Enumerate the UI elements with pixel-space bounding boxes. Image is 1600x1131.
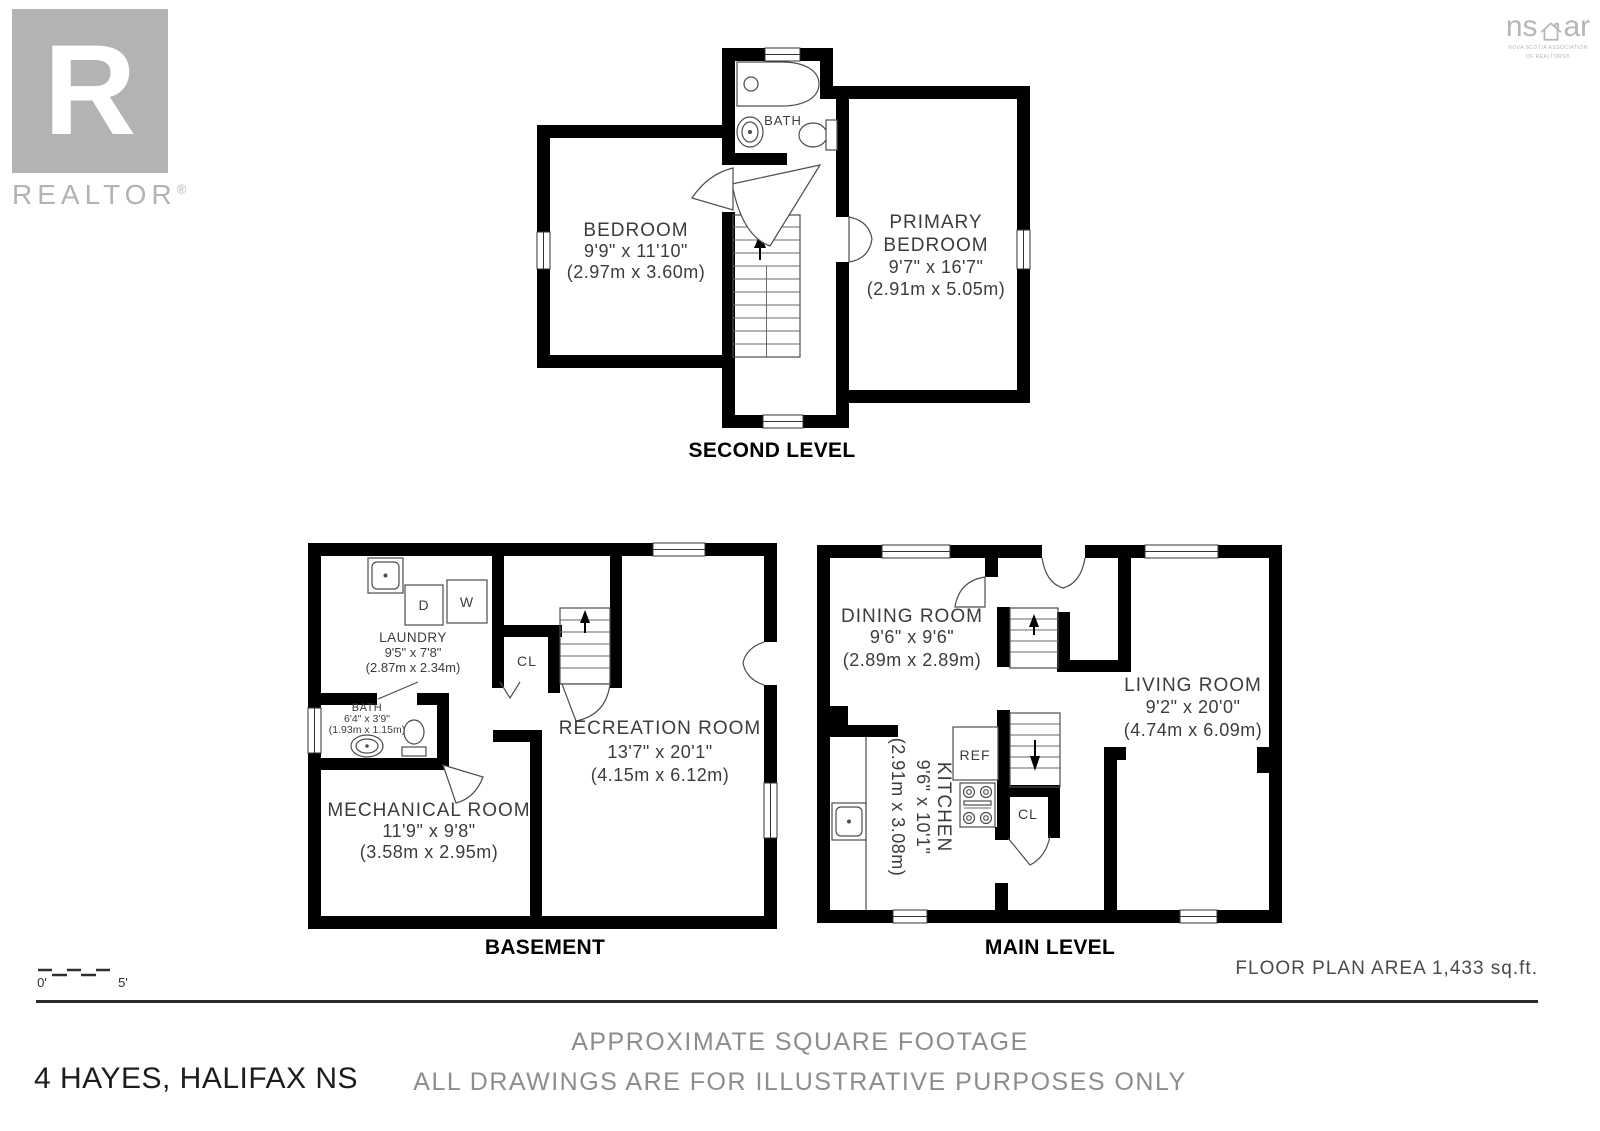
room-label-kitchen: KITCHEN [933, 762, 954, 852]
kitchen-sink-icon [832, 803, 866, 840]
second-level-labels: BATH BEDROOM 9'9" x 11'10" (2.97m x 3.60… [567, 113, 1006, 462]
main-lower-stairs [1010, 713, 1060, 787]
room-dim-recreation: 13'7" x 20'1" [607, 742, 712, 762]
nsar-subtext-1: NOVA SCOTIA ASSOCIATION [1498, 45, 1598, 51]
room-dim-kitchen-metric: (2.91m x 3.08m) [888, 738, 908, 877]
nsar-subtext-2: OF REALTORS® [1498, 54, 1598, 60]
room-label-dining: DINING ROOM [841, 606, 983, 627]
nsar-logo-word: ns ar [1498, 12, 1598, 42]
main-level-labels: DINING ROOM 9'6" x 9'6" (2.89m x 2.89m) … [841, 606, 1262, 959]
room-dim-recreation-metric: (4.15m x 6.12m) [591, 765, 730, 785]
nsar-logo: ns ar NOVA SCOTIA ASSOCIATION OF REALTOR… [1498, 12, 1598, 60]
stairs-down-arrow-icon [1030, 756, 1040, 771]
stove-icon [960, 783, 995, 827]
scale-start-label: 0' [37, 975, 47, 990]
basement-labels: D W LAUNDRY 9'5" x 7'8" (2.87m x 2.34m) … [327, 594, 761, 959]
stairs-up-arrow-icon [580, 610, 590, 623]
sink-icon [351, 735, 383, 757]
scale-bar: 0' 5' [30, 958, 170, 998]
realtor-logo-letter: R [44, 27, 136, 155]
closet-label: CL [1018, 806, 1038, 822]
floor-plan-area-note: FLOOR PLAN AREA 1,433 sq.ft. [1235, 958, 1538, 980]
room-label-living: LIVING ROOM [1124, 675, 1262, 696]
basement-stairs [560, 608, 610, 721]
realtor-logo-icon: R [12, 9, 168, 173]
dryer-label: D [418, 597, 429, 613]
room-label-laundry: LAUNDRY [379, 630, 447, 645]
fridge-label: REF [960, 747, 991, 763]
room-dim-living-metric: (4.74m x 6.09m) [1124, 720, 1263, 740]
bathtub-icon [737, 62, 819, 106]
room-label-primary-1: PRIMARY [889, 212, 982, 233]
room-dim-dining: 9'6" x 9'6" [870, 627, 954, 647]
disclaimer-line-1: APPROXIMATE SQUARE FOOTAGE [0, 1022, 1600, 1062]
room-dim-mechanical: 11'9" x 9'8" [382, 821, 475, 841]
nsar-right: ar [1564, 12, 1591, 42]
realtor-logo: R REALTOR® [12, 9, 182, 211]
room-label-recreation: RECREATION ROOM [559, 718, 762, 739]
toilet-icon [402, 720, 426, 756]
room-dim-dining-metric: (2.89m x 2.89m) [843, 650, 982, 670]
kitchen-label-group: KITCHEN 9'6" x 10'1" (2.91m x 3.08m) [888, 738, 954, 877]
room-dim-living: 9'2" x 20'0" [1146, 697, 1241, 717]
scale-end-label: 5' [118, 975, 128, 990]
house-icon [1539, 20, 1563, 42]
level-label-main: MAIN LEVEL [985, 936, 1115, 959]
realtor-label: REALTOR [12, 179, 177, 210]
basement-plan: D W LAUNDRY 9'5" x 7'8" (2.87m x 2.34m) … [300, 535, 800, 965]
main-upper-stairs [1010, 608, 1058, 668]
washer-label: W [460, 594, 474, 610]
room-label-primary-2: BEDROOM [883, 235, 988, 256]
nsar-left: ns [1506, 12, 1538, 42]
level-label-basement: BASEMENT [485, 936, 605, 959]
room-dim-bedroom-metric: (2.97m x 3.60m) [567, 262, 706, 282]
level-label-second: SECOND LEVEL [689, 439, 856, 462]
room-dim-laundry-metric: (2.87m x 2.34m) [366, 660, 461, 675]
laundry-sink-icon [368, 558, 403, 593]
room-dim-primary-metric: (2.91m x 5.05m) [867, 279, 1006, 299]
room-label-bedroom: BEDROOM [583, 220, 688, 241]
second-level-plan: BATH BEDROOM 9'9" x 11'10" (2.97m x 3.60… [520, 40, 1040, 480]
room-dim-laundry: 9'5" x 7'8" [385, 645, 442, 660]
floor-plan-sheet: R REALTOR® ns ar NOVA SCOTIA ASSOCIATION… [0, 0, 1600, 1131]
stairs-up-arrow-icon [1029, 614, 1039, 627]
registered-mark: ® [177, 182, 187, 197]
room-label-bath: BATH [764, 113, 802, 128]
room-dim-bath-metric: (1.93m x 1.15m) [329, 724, 405, 736]
realtor-logo-word: REALTOR® [12, 179, 182, 211]
room-dim-bedroom: 9'9" x 11'10" [584, 241, 688, 261]
sink-icon [737, 117, 763, 147]
room-label-mechanical: MECHANICAL ROOM [327, 800, 530, 821]
footer-divider [36, 1000, 1538, 1003]
main-level-plan: DINING ROOM 9'6" x 9'6" (2.89m x 2.89m) … [810, 535, 1290, 965]
room-dim-primary: 9'7" x 16'7" [889, 257, 984, 277]
toilet-icon [799, 120, 837, 150]
room-dim-mechanical-metric: (3.58m x 2.95m) [360, 842, 499, 862]
room-dim-kitchen: 9'6" x 10'1" [913, 760, 933, 855]
closet-label: CL [517, 653, 537, 669]
property-address: 4 HAYES, HALIFAX NS [34, 1062, 358, 1096]
